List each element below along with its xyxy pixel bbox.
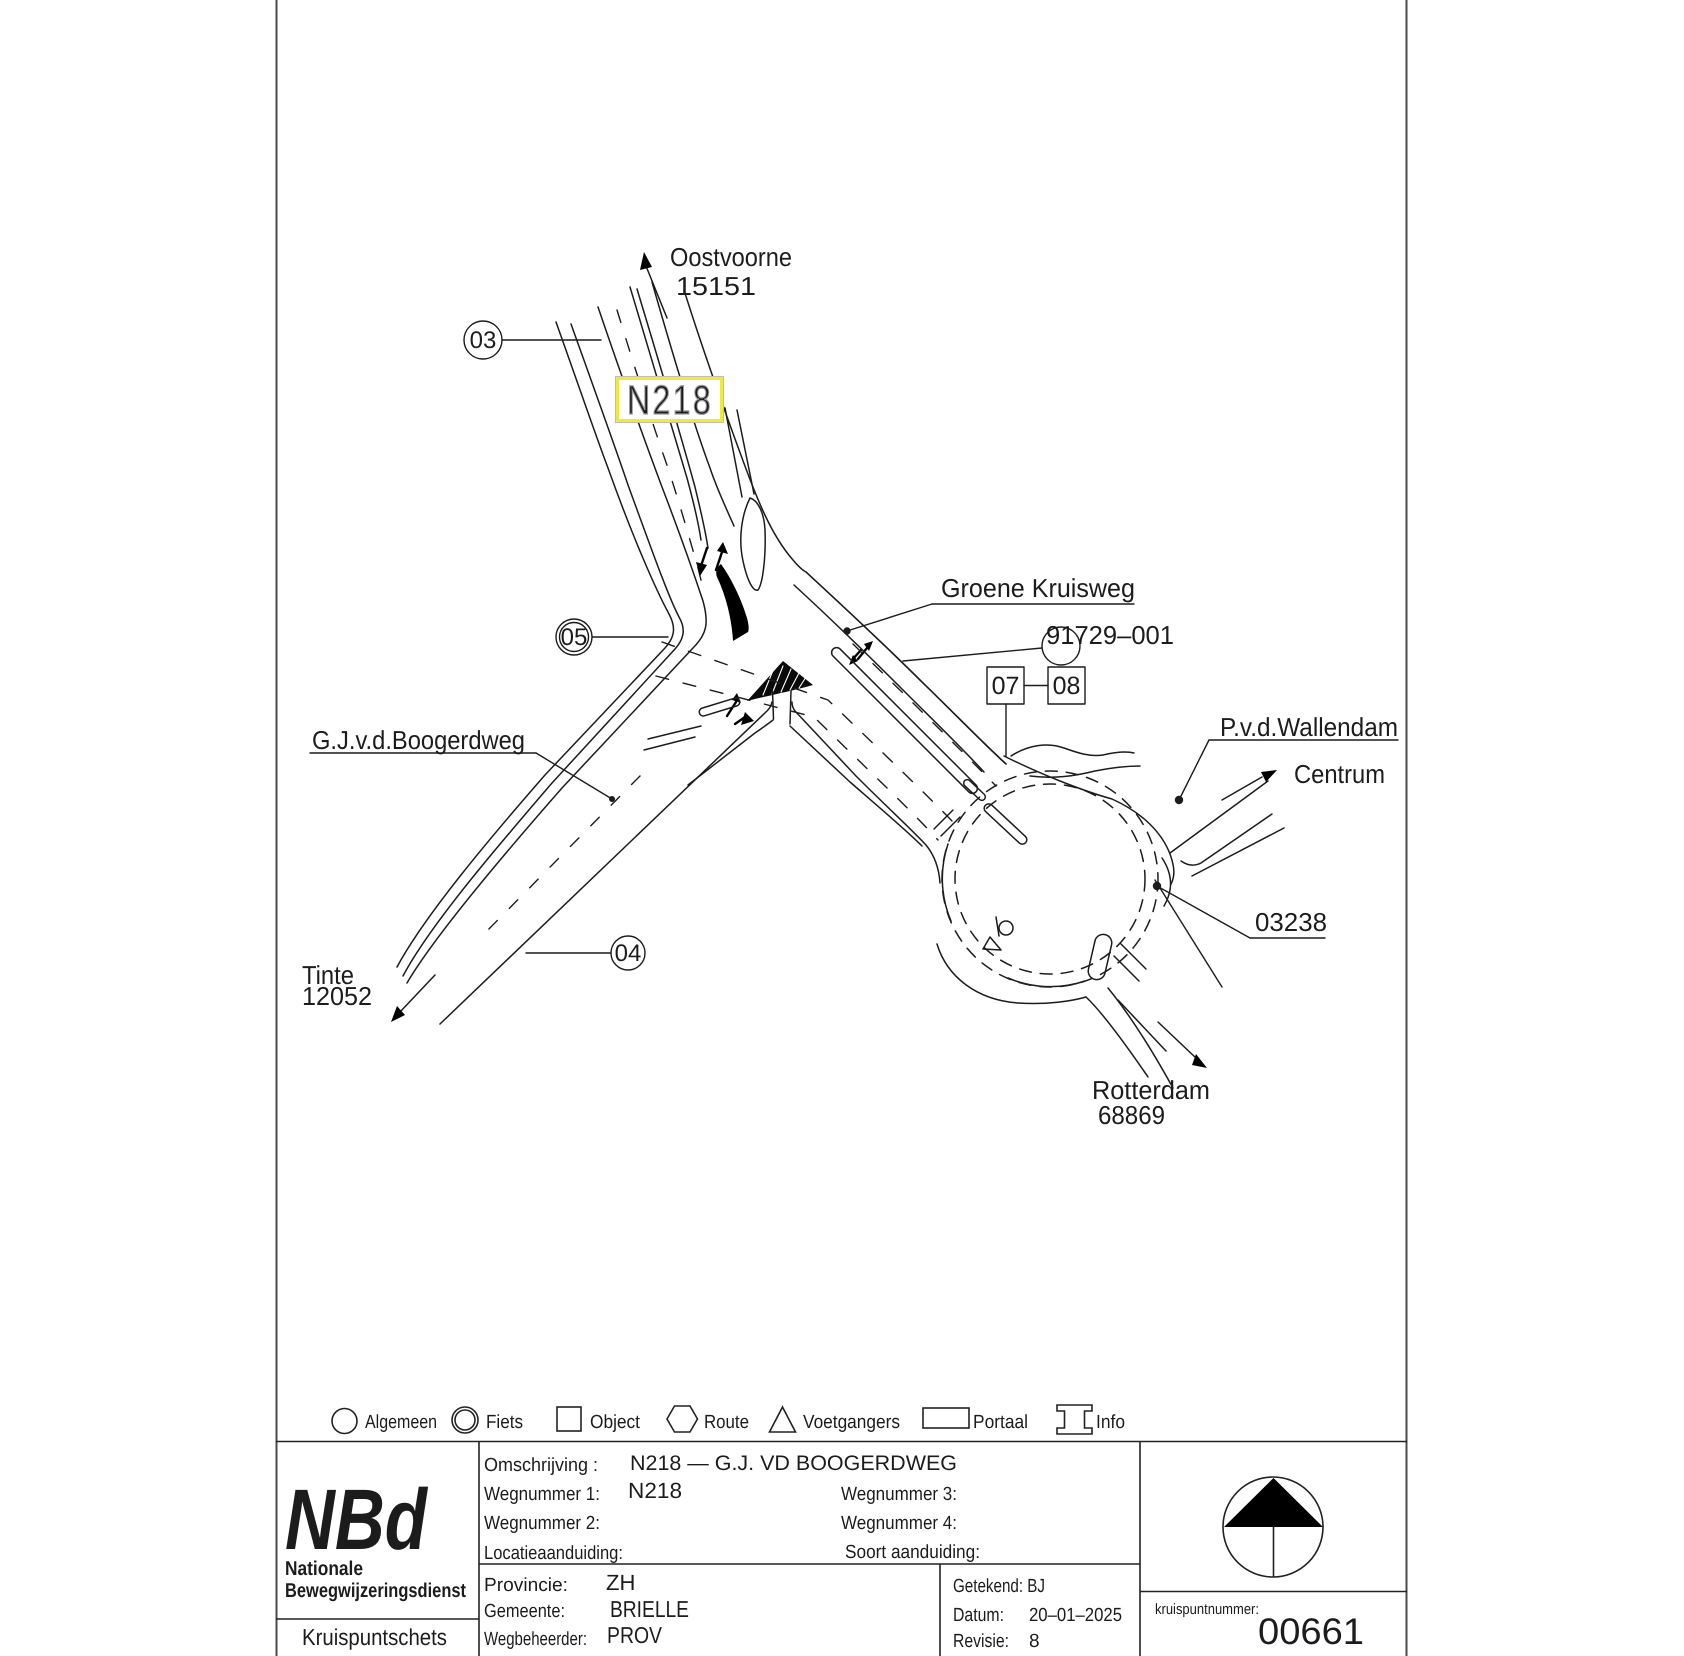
svg-text:00661: 00661: [1258, 1611, 1364, 1652]
svg-text:04: 04: [615, 940, 642, 967]
svg-text:Centrum: Centrum: [1294, 759, 1385, 789]
svg-text:12052: 12052: [302, 981, 372, 1011]
svg-text:Wegbeheerder:: Wegbeheerder:: [484, 1629, 587, 1650]
svg-text:Fiets: Fiets: [486, 1412, 523, 1433]
svg-text:03: 03: [470, 327, 497, 354]
svg-text:Groene Kruisweg: Groene Kruisweg: [941, 573, 1135, 603]
svg-text:Locatieaanduiding:: Locatieaanduiding:: [484, 1543, 623, 1564]
svg-text:BRIELLE: BRIELLE: [610, 1596, 689, 1622]
svg-text:N218: N218: [628, 1478, 682, 1503]
svg-text:Getekend: BJ: Getekend: BJ: [953, 1576, 1045, 1597]
svg-text:Voetgangers: Voetgangers: [803, 1412, 900, 1433]
svg-text:N218: N218: [627, 377, 713, 423]
svg-text:Provincie:: Provincie:: [484, 1575, 568, 1596]
svg-text:Kruispuntschets: Kruispuntschets: [302, 1624, 447, 1650]
svg-text:15151: 15151: [676, 271, 756, 301]
svg-text:8: 8: [1029, 1631, 1040, 1652]
svg-text:G.J.v.d.Boogerdweg: G.J.v.d.Boogerdweg: [312, 725, 525, 755]
svg-text:08: 08: [1053, 672, 1081, 700]
svg-text:07: 07: [992, 672, 1020, 700]
svg-text:N218 — G.J. VD BOOGERDWEG: N218 — G.J. VD BOOGERDWEG: [630, 1452, 957, 1475]
svg-text:Nationale: Nationale: [285, 1558, 363, 1580]
svg-text:Object: Object: [590, 1412, 641, 1433]
svg-text:Algemeen: Algemeen: [365, 1412, 437, 1433]
svg-text:Wegnummer 1:: Wegnummer 1:: [484, 1484, 600, 1505]
svg-text:Soort aanduiding:: Soort aanduiding:: [845, 1542, 980, 1563]
svg-text:kruispuntnummer:: kruispuntnummer:: [1155, 1601, 1259, 1618]
svg-text:Revisie:: Revisie:: [953, 1631, 1009, 1652]
svg-text:Datum:: Datum:: [953, 1605, 1004, 1626]
svg-text:ZH: ZH: [606, 1570, 635, 1595]
svg-text:20–01–2025: 20–01–2025: [1029, 1605, 1122, 1626]
svg-text:03238: 03238: [1255, 907, 1327, 937]
svg-text:Wegnummer 2:: Wegnummer 2:: [484, 1513, 600, 1534]
svg-text:Portaal: Portaal: [973, 1412, 1028, 1433]
svg-text:Wegnummer 3:: Wegnummer 3:: [841, 1484, 957, 1505]
svg-text:Bewegwijzeringsdienst: Bewegwijzeringsdienst: [285, 1580, 466, 1602]
svg-text:Info: Info: [1096, 1412, 1125, 1433]
svg-text:NBd: NBd: [285, 1472, 428, 1568]
svg-text:91729–001: 91729–001: [1046, 620, 1174, 650]
svg-text:Oostvoorne: Oostvoorne: [670, 242, 792, 272]
svg-text:68869: 68869: [1098, 1100, 1165, 1130]
svg-text:P.v.d.Wallendam: P.v.d.Wallendam: [1220, 712, 1398, 742]
svg-text:Gemeente:: Gemeente:: [484, 1601, 565, 1622]
svg-text:Wegnummer 4:: Wegnummer 4:: [841, 1513, 957, 1534]
svg-text:Route: Route: [704, 1412, 749, 1433]
svg-text:05: 05: [561, 624, 588, 651]
svg-text:PROV: PROV: [607, 1622, 663, 1648]
svg-text:Omschrijving :: Omschrijving :: [484, 1455, 598, 1476]
